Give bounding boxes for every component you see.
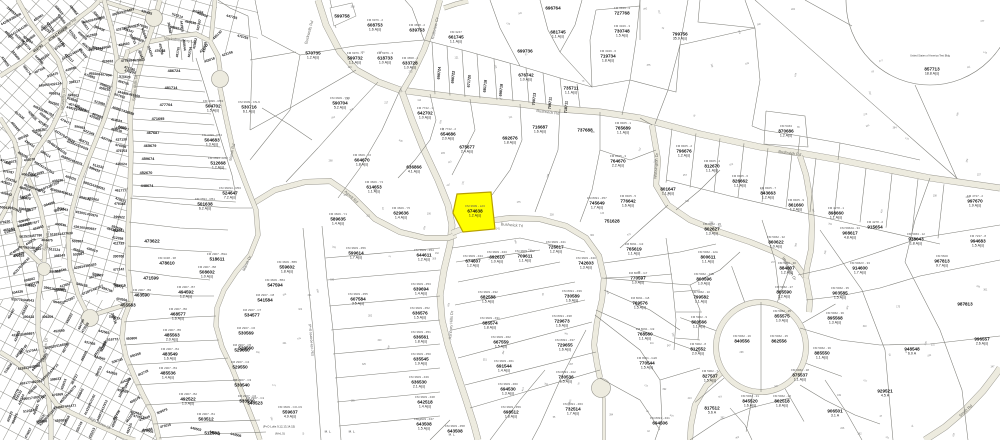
svg-text:1.1 A(s): 1.1 A(s)	[693, 324, 705, 328]
svg-text:1.2 A(s): 1.2 A(s)	[780, 133, 792, 137]
svg-text:406209: 406209	[42, 315, 53, 319]
svg-text:1.5 A(s): 1.5 A(s)	[495, 344, 507, 348]
svg-text:1.3 A(s): 1.3 A(s)	[580, 265, 592, 269]
svg-text:United States of America Test: United States of America Test Bldg	[910, 54, 950, 58]
svg-text:35.9 A(s): 35.9 A(s)	[673, 37, 687, 41]
svg-text:1.0 A(s): 1.0 A(s)	[520, 78, 532, 82]
svg-text:477142: 477142	[113, 267, 125, 272]
svg-text:639753: 639753	[409, 27, 425, 32]
svg-text:1.1 A(s): 1.1 A(s)	[552, 35, 564, 39]
svg-text:467867: 467867	[132, 58, 144, 62]
svg-text:1.8 A(s): 1.8 A(s)	[484, 325, 496, 329]
svg-text:1.0 A(s): 1.0 A(s)	[698, 281, 710, 285]
svg-text:M. L.: M. L.	[349, 430, 356, 434]
svg-text:481714: 481714	[165, 86, 179, 90]
svg-text:1.6 A(s): 1.6 A(s)	[534, 130, 546, 134]
svg-text:1.5 A(s): 1.5 A(s)	[641, 365, 653, 369]
svg-text:444543: 444543	[23, 298, 35, 303]
svg-text:6.0 A: 6.0 A	[908, 352, 917, 356]
svg-text:4.1 A(s): 4.1 A(s)	[408, 170, 420, 174]
svg-text:1.2 A(s): 1.2 A(s)	[778, 294, 790, 298]
svg-text:529550: 529550	[232, 364, 248, 369]
svg-text:1.9 A(s): 1.9 A(s)	[415, 361, 427, 365]
svg-text:1.2 A(s): 1.2 A(s)	[790, 207, 802, 211]
svg-text:1.6 A(s): 1.6 A(s)	[164, 356, 176, 360]
svg-text:1.3 A(s): 1.3 A(s)	[206, 142, 218, 146]
svg-text:4.9 A(s): 4.9 A(s)	[284, 414, 296, 418]
svg-text:1.0 A(s): 1.0 A(s)	[419, 115, 431, 119]
svg-text:479738: 479738	[155, 49, 166, 53]
svg-text:516772: 516772	[107, 337, 119, 342]
svg-text:1.0 A(s): 1.0 A(s)	[491, 259, 503, 263]
svg-text:4.8 A(s): 4.8 A(s)	[844, 235, 856, 239]
svg-text:1.2 A(s): 1.2 A(s)	[212, 165, 224, 169]
svg-text:6.2 A(s): 6.2 A(s)	[199, 206, 211, 210]
svg-text:540523: 540523	[247, 400, 263, 405]
svg-text:1.1 A(s): 1.1 A(s)	[519, 258, 531, 262]
svg-text:1.4 A(s): 1.4 A(s)	[395, 215, 407, 219]
svg-text:1.4 A(s): 1.4 A(s)	[332, 221, 344, 225]
svg-text:5.6 A: 5.6 A	[708, 411, 717, 415]
svg-text:426832: 426832	[102, 59, 114, 63]
svg-text:1.0 A(s): 1.0 A(s)	[404, 65, 416, 69]
svg-text:534577: 534577	[244, 312, 260, 317]
svg-text:1.1 A(s): 1.1 A(s)	[816, 355, 828, 359]
svg-text:3.1 A: 3.1 A	[831, 414, 840, 418]
svg-text:M. L.: M. L.	[325, 430, 332, 434]
svg-text:840556: 840556	[734, 338, 750, 343]
svg-text:4.5 A: 4.5 A	[881, 394, 890, 398]
svg-text:1.8 A(s): 1.8 A(s)	[281, 269, 293, 273]
svg-text:1.4 A(s): 1.4 A(s)	[162, 375, 174, 379]
svg-text:1.5 A(s): 1.5 A(s)	[414, 315, 426, 319]
svg-text:2.0 A(s): 2.0 A(s)	[442, 136, 454, 140]
svg-text:1.1 A(s): 1.1 A(s)	[706, 168, 718, 172]
svg-text:1.1 A(s): 1.1 A(s)	[695, 299, 707, 303]
svg-text:1.1 A(s): 1.1 A(s)	[628, 251, 640, 255]
svg-text:455583: 455583	[120, 303, 136, 308]
svg-text:1.0 A(s): 1.0 A(s)	[770, 244, 782, 248]
svg-text:3.5 A(s): 3.5 A(s)	[352, 301, 364, 305]
svg-text:1.5 A(s): 1.5 A(s)	[834, 295, 846, 299]
svg-text:1.6 A(s): 1.6 A(s)	[566, 298, 578, 302]
svg-text:699736: 699736	[517, 49, 533, 54]
svg-text:395331: 395331	[30, 246, 42, 251]
svg-text:1.1 A(s): 1.1 A(s)	[702, 259, 714, 263]
svg-text:643508: 643508	[447, 428, 463, 433]
svg-text:862556: 862556	[771, 338, 787, 343]
svg-text:1.5 A(s): 1.5 A(s)	[972, 243, 984, 247]
svg-text:9.7 A(s): 9.7 A(s)	[936, 263, 948, 267]
svg-text:1.1 A(s): 1.1 A(s)	[830, 215, 842, 219]
svg-text:5.2 A(s): 5.2 A(s)	[334, 105, 346, 109]
svg-text:2.4 A(s): 2.4 A(s)	[461, 150, 473, 154]
svg-text:1.6 A(s): 1.6 A(s)	[556, 323, 568, 327]
svg-text:473622: 473622	[144, 239, 160, 244]
svg-text:464475: 464475	[41, 238, 53, 242]
svg-text:1.0 A(s): 1.0 A(s)	[182, 401, 194, 405]
svg-text:1.2 A(s): 1.2 A(s)	[418, 257, 430, 261]
svg-text:1.2 A(s): 1.2 A(s)	[781, 270, 793, 274]
svg-text:1.5 A(s): 1.5 A(s)	[418, 426, 430, 430]
svg-text:1.8 A(s): 1.8 A(s)	[776, 403, 788, 407]
svg-text:1.1 A(s): 1.1 A(s)	[734, 183, 746, 187]
svg-text:437138: 437138	[115, 137, 127, 141]
svg-text:1.7 A(s): 1.7 A(s)	[567, 411, 579, 415]
svg-text:486724: 486724	[168, 69, 182, 73]
svg-text:1.4 A(s): 1.4 A(s)	[419, 404, 431, 408]
svg-text:411733: 411733	[113, 242, 124, 246]
svg-text:427639: 427639	[61, 231, 73, 236]
svg-text:2.1 A(s): 2.1 A(s)	[413, 384, 425, 388]
svg-text:502523: 502523	[19, 234, 31, 239]
svg-text:1.0 A(s): 1.0 A(s)	[201, 274, 213, 278]
svg-text:1.6 A(s): 1.6 A(s)	[744, 403, 756, 407]
svg-text:1.2 A(s): 1.2 A(s)	[469, 213, 481, 217]
svg-text:1.4 A(s): 1.4 A(s)	[415, 291, 427, 295]
svg-text:513124: 513124	[49, 247, 61, 252]
svg-text:1.5 A(s): 1.5 A(s)	[482, 299, 494, 303]
svg-text:1.6 A(s): 1.6 A(s)	[172, 316, 184, 320]
svg-text:1.2 A(s): 1.2 A(s)	[467, 263, 479, 267]
svg-text:7.2 A(s): 7.2 A(s)	[224, 195, 236, 199]
svg-text:1.2 A(s): 1.2 A(s)	[307, 56, 319, 60]
svg-text:1.1 A(s): 1.1 A(s)	[450, 39, 462, 43]
svg-text:547594: 547594	[267, 282, 283, 287]
svg-text:477704: 477704	[160, 103, 174, 107]
svg-text:476703: 476703	[116, 149, 127, 153]
svg-text:6.1 A(s): 6.1 A(s)	[243, 109, 255, 113]
svg-text:1.1 A(s): 1.1 A(s)	[794, 377, 806, 381]
svg-text:1.1 A(s): 1.1 A(s)	[617, 130, 629, 134]
svg-text:1.7 A(s): 1.7 A(s)	[591, 205, 603, 209]
svg-text:1.3 A(s): 1.3 A(s)	[502, 391, 514, 395]
svg-text:696764: 696764	[545, 6, 561, 11]
svg-text:390418: 390418	[23, 315, 34, 319]
svg-text:519231: 519231	[50, 232, 62, 237]
svg-text:463590: 463590	[134, 292, 150, 297]
svg-text:477889: 477889	[121, 58, 133, 62]
svg-text:1.4 A(s): 1.4 A(s)	[498, 368, 510, 372]
svg-text:1.5 A(s): 1.5 A(s)	[207, 108, 219, 112]
svg-text:529560: 529560	[238, 346, 254, 351]
svg-text:1.8 A(s): 1.8 A(s)	[415, 339, 427, 343]
svg-text:467687: 467687	[147, 131, 160, 135]
svg-text:1.9 A(s): 1.9 A(s)	[969, 203, 981, 207]
svg-text:1.6 A(s): 1.6 A(s)	[369, 27, 381, 31]
svg-text:452670: 452670	[140, 171, 153, 175]
svg-text:751628: 751628	[604, 219, 620, 224]
svg-text:461777: 461777	[115, 188, 127, 192]
svg-text:1.1 A(s): 1.1 A(s)	[639, 336, 651, 340]
svg-text:450800: 450800	[126, 336, 138, 341]
svg-text:915654: 915654	[867, 224, 883, 229]
svg-text:2.0 A(s): 2.0 A(s)	[166, 337, 178, 341]
svg-text:448674: 448674	[141, 184, 155, 188]
svg-text:1.8 A(s): 1.8 A(s)	[356, 162, 368, 166]
svg-text:410024: 410024	[115, 162, 127, 166]
svg-text:1.7 A(s): 1.7 A(s)	[854, 270, 866, 274]
svg-text:1.1 A(s): 1.1 A(s)	[349, 60, 361, 64]
svg-text:1.0 A(s): 1.0 A(s)	[776, 318, 788, 322]
svg-text:1.8 A(s): 1.8 A(s)	[910, 241, 922, 245]
svg-text:1.2 A(s): 1.2 A(s)	[678, 153, 690, 157]
svg-text:503907: 503907	[72, 239, 84, 243]
svg-text:(M+L 5): (M+L 5)	[275, 432, 285, 436]
svg-text:465679: 465679	[144, 144, 157, 148]
svg-text:1.2 A(s): 1.2 A(s)	[550, 249, 562, 253]
svg-text:1.8 A(s): 1.8 A(s)	[505, 414, 517, 418]
svg-text:478610: 478610	[159, 260, 175, 265]
svg-text:1.6 A(s): 1.6 A(s)	[622, 203, 634, 207]
svg-text:515779: 515779	[11, 297, 23, 302]
svg-text:541584: 541584	[257, 297, 273, 302]
svg-text:387069: 387069	[18, 245, 30, 250]
svg-text:390766: 390766	[113, 254, 124, 258]
svg-text:694506: 694506	[652, 420, 668, 425]
svg-text:1.0 A(s): 1.0 A(s)	[379, 60, 391, 64]
svg-text:(P+O Lofts 9,12,13,14,15): (P+O Lofts 9,12,13,14,15)	[263, 425, 295, 429]
svg-text:504433: 504433	[53, 300, 65, 305]
svg-text:512503: 512503	[204, 431, 220, 436]
svg-text:1.8 A(s): 1.8 A(s)	[504, 141, 516, 145]
svg-text:1.6 A(s): 1.6 A(s)	[559, 347, 571, 351]
svg-text:1.3 A(s): 1.3 A(s)	[706, 231, 718, 235]
svg-text:398143: 398143	[54, 253, 66, 258]
svg-text:1.2 A(s): 1.2 A(s)	[180, 294, 192, 298]
svg-text:1.3 A(s): 1.3 A(s)	[829, 320, 841, 324]
svg-text:530569: 530569	[238, 330, 254, 335]
svg-text:530540: 530540	[234, 382, 250, 387]
svg-text:459674: 459674	[142, 157, 156, 161]
svg-text:2.0 A(s): 2.0 A(s)	[692, 351, 704, 355]
svg-text:471599: 471599	[143, 276, 159, 281]
svg-text:503512: 503512	[198, 416, 214, 421]
svg-text:1.7 A(s): 1.7 A(s)	[350, 255, 362, 259]
svg-text:1.2 A(s): 1.2 A(s)	[762, 195, 774, 199]
svg-text:1.5 A(s): 1.5 A(s)	[560, 379, 572, 383]
svg-text:1.5 A(s): 1.5 A(s)	[704, 378, 716, 382]
svg-text:1.1 A(s): 1.1 A(s)	[565, 91, 577, 95]
svg-text:386882: 386882	[49, 269, 61, 274]
svg-text:727768: 727768	[614, 10, 630, 15]
svg-text:2.6 A(s): 2.6 A(s)	[976, 342, 988, 346]
svg-text:1.8 A(s): 1.8 A(s)	[602, 58, 614, 62]
svg-text:18.8 A(s): 18.8 A(s)	[925, 72, 939, 76]
svg-text:1.0 A(s): 1.0 A(s)	[632, 280, 644, 284]
svg-text:599758: 599758	[334, 14, 350, 19]
svg-text:2.2 A(s): 2.2 A(s)	[612, 163, 624, 167]
svg-text:399922: 399922	[113, 215, 125, 220]
svg-text:518611: 518611	[209, 256, 225, 261]
svg-text:471695: 471695	[152, 117, 165, 121]
svg-text:1.5 A(s): 1.5 A(s)	[616, 33, 628, 37]
